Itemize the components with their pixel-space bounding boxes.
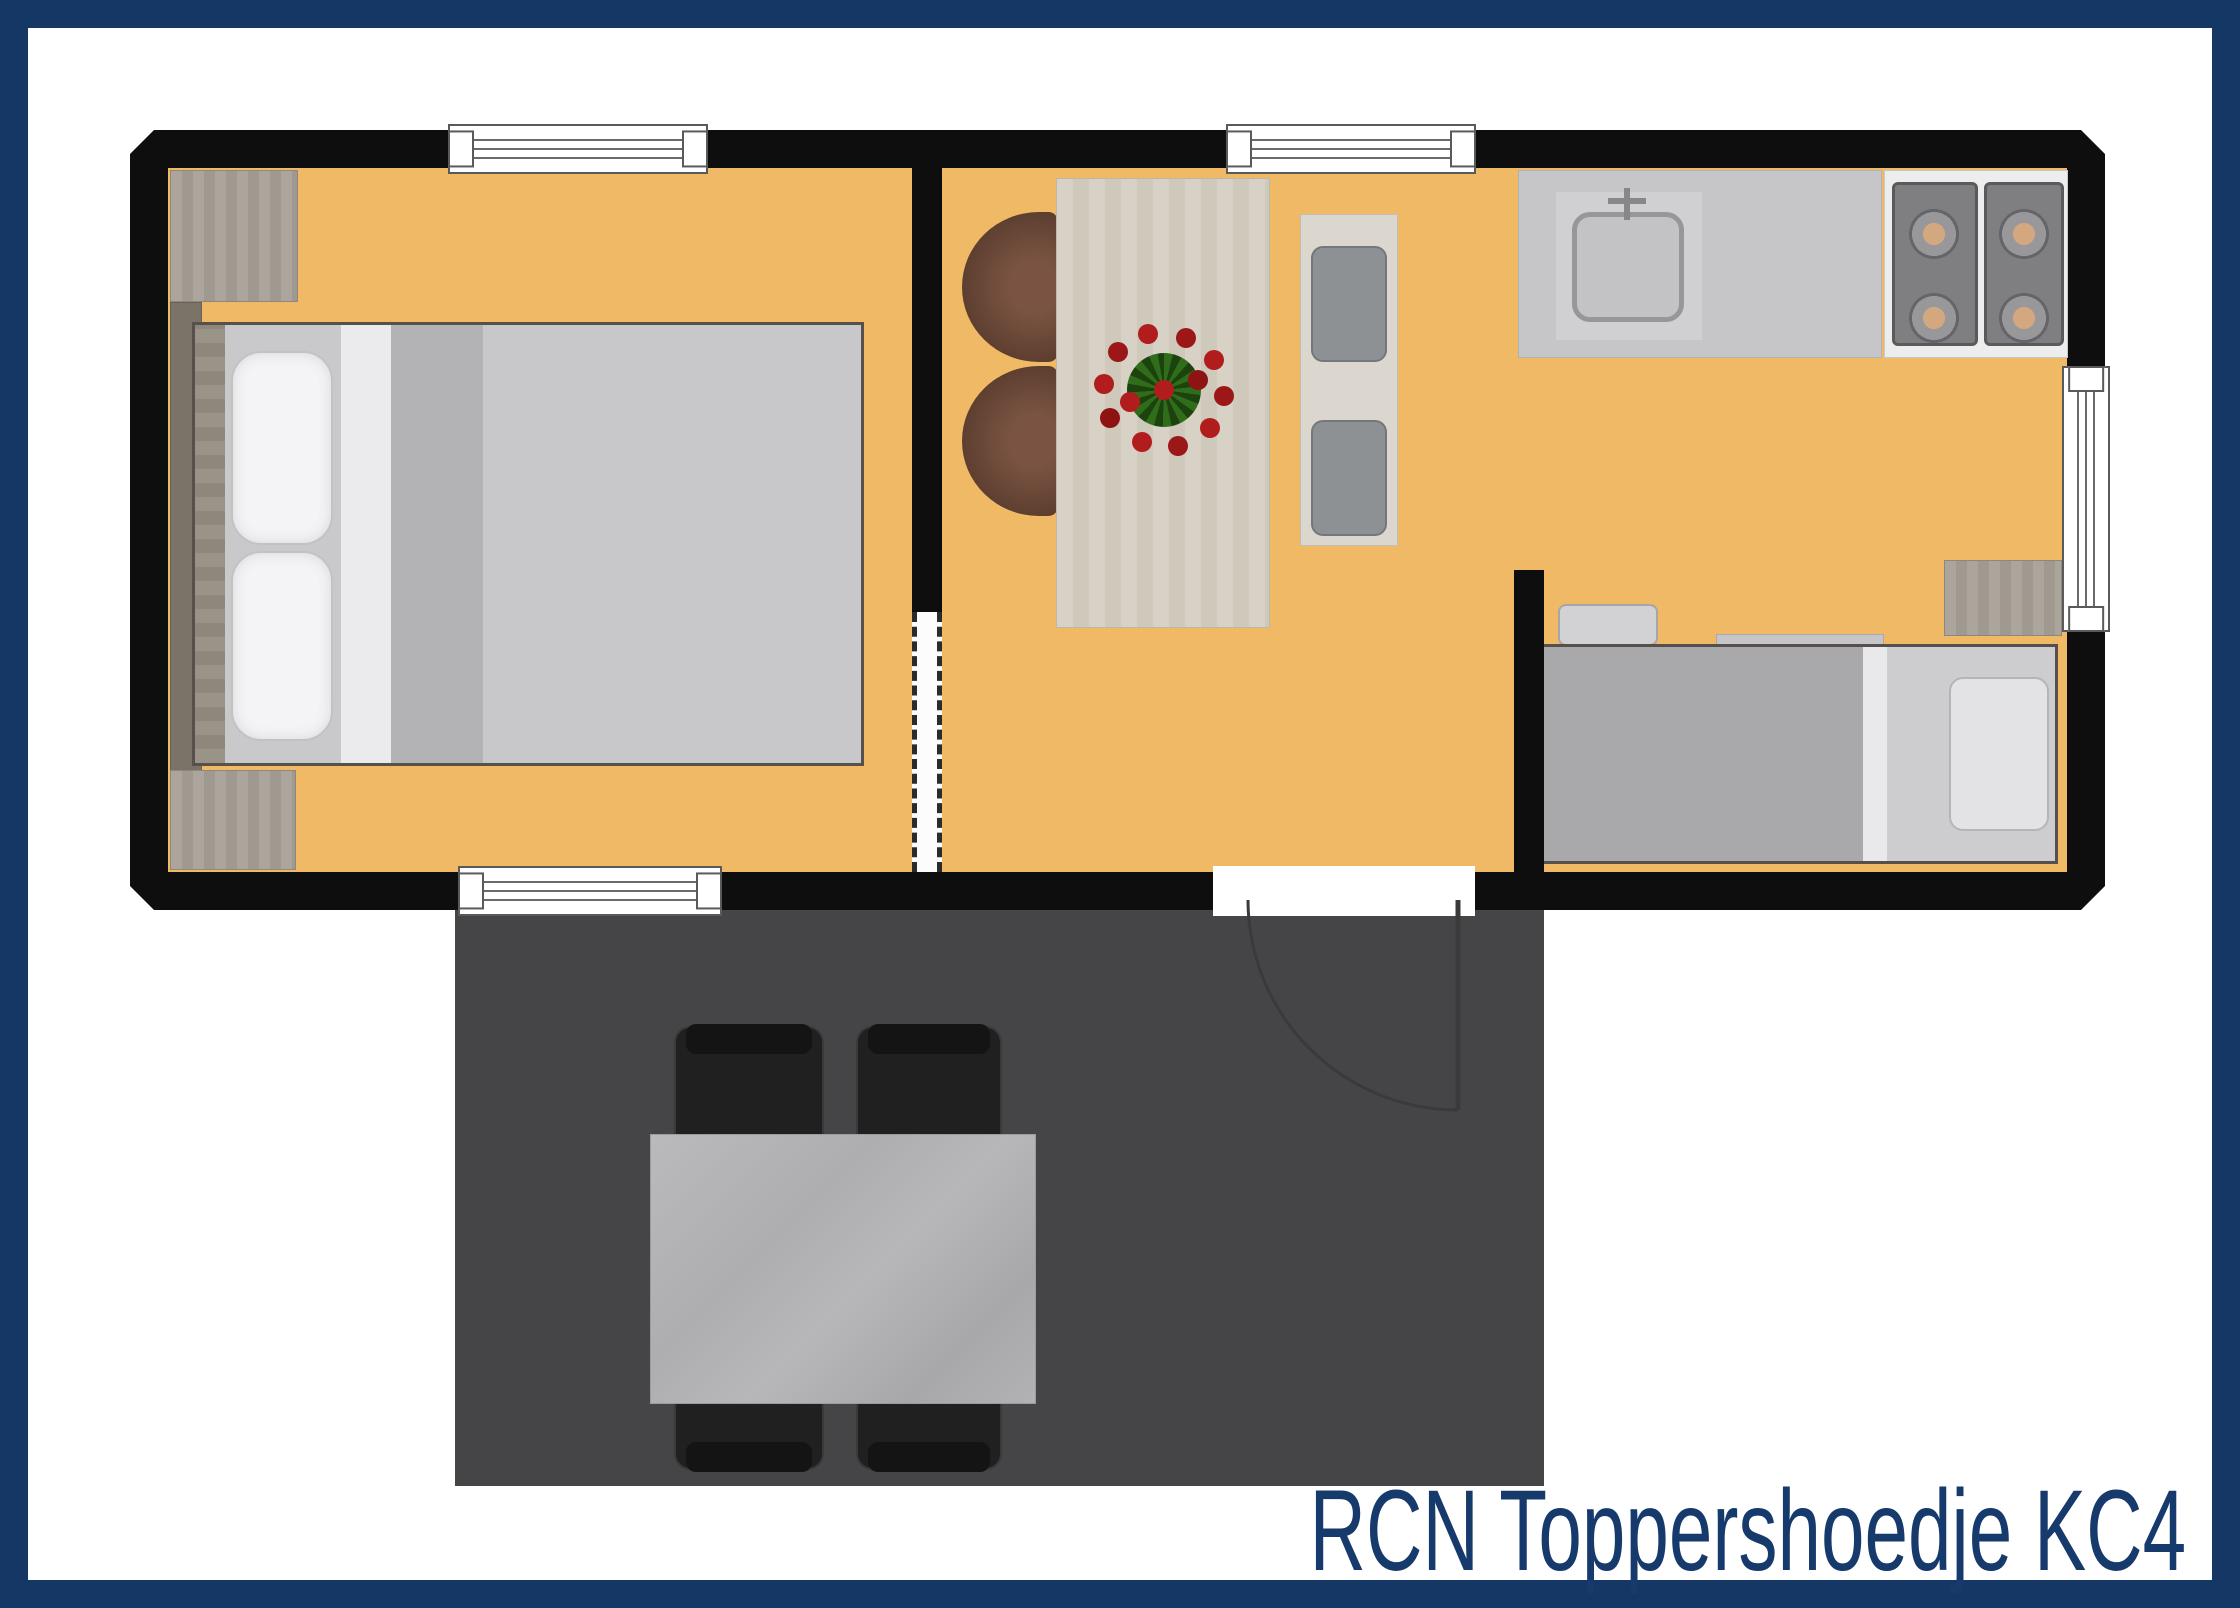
floor-plan-canvas: RCN Toppershoedje KC4 xyxy=(0,0,2240,1608)
window-top-bedroom xyxy=(448,124,708,174)
burner-icon xyxy=(1996,290,2052,346)
flower-petals-icon xyxy=(1154,380,1174,400)
picnic-table-icon xyxy=(650,1134,1036,1404)
sliding-door-icon xyxy=(912,612,942,872)
pillow-icon xyxy=(231,551,333,741)
wardrobe-bottom-icon xyxy=(170,770,296,870)
headboard-icon xyxy=(195,325,225,763)
window-top-living xyxy=(1226,124,1476,174)
burner-icon xyxy=(1906,290,1962,346)
side-cabinet-icon xyxy=(1944,560,2062,636)
bed-sheet-icon xyxy=(1863,647,1887,861)
flower-centerpiece-icon xyxy=(1092,318,1236,462)
double-bed-icon xyxy=(192,322,864,766)
stool-cushion-icon xyxy=(1311,246,1387,362)
bed-blanket-icon xyxy=(1543,647,1863,861)
interior-wall-bedroom xyxy=(912,168,942,612)
bed-sheet-icon xyxy=(341,325,392,763)
plan-caption: RCN Toppershoedje KC4 xyxy=(1309,1474,2186,1589)
head-bench-icon xyxy=(1558,604,1658,646)
window-right-wall xyxy=(2062,366,2110,632)
pillow-icon xyxy=(231,351,333,545)
burner-icon xyxy=(1906,206,1962,262)
entrance-door-swing-icon xyxy=(1211,892,1479,1120)
sink-basin-icon xyxy=(1572,212,1684,322)
stool-cushion-icon xyxy=(1311,420,1387,536)
window-bottom-bedroom xyxy=(458,866,722,916)
single-bed-icon xyxy=(1540,644,2058,864)
interior-wall-nook xyxy=(1514,570,1544,872)
burner-icon xyxy=(1996,206,2052,262)
pillow-icon xyxy=(1949,677,2049,831)
faucet-icon xyxy=(1624,188,1630,220)
wardrobe-top-icon xyxy=(170,170,298,302)
bed-blanket-icon xyxy=(391,325,861,763)
